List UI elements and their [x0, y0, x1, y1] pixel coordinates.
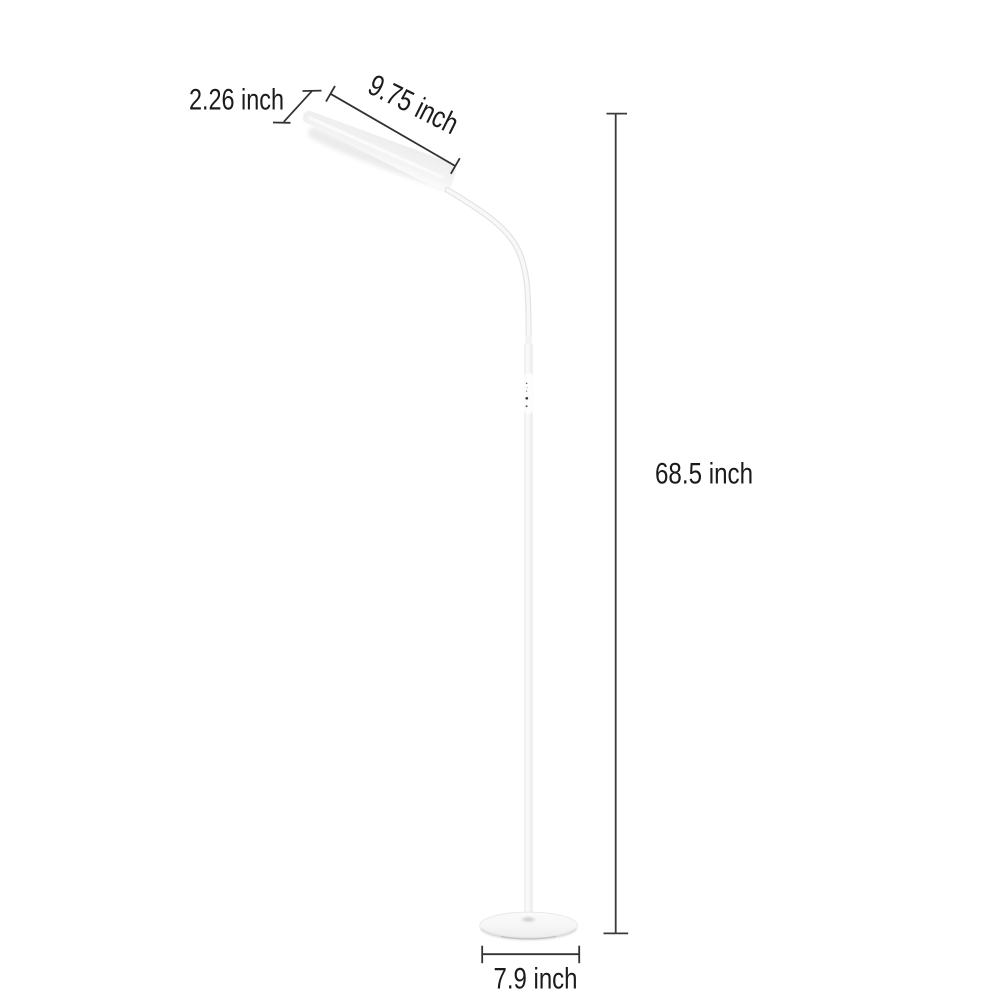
- svg-text:7.9 inch: 7.9 inch: [494, 963, 578, 996]
- svg-text:68.5 inch: 68.5 inch: [655, 458, 753, 491]
- svg-text:2.26 inch: 2.26 inch: [189, 84, 284, 117]
